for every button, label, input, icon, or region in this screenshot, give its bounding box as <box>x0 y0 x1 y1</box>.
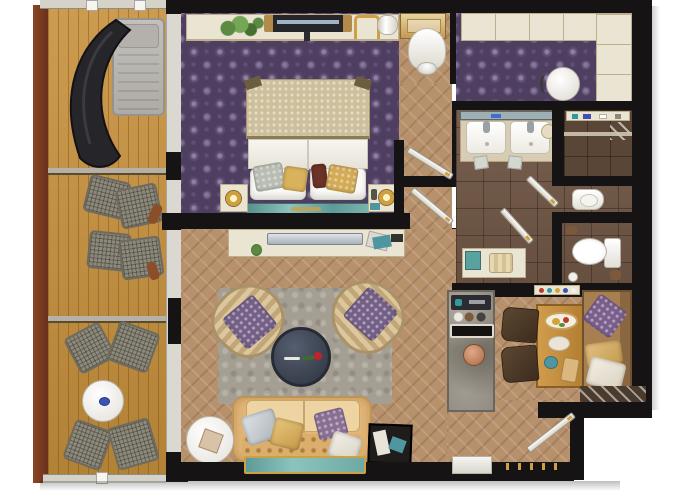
nightstand-left <box>220 184 248 212</box>
teal-book <box>370 203 380 210</box>
dining-table <box>536 304 584 388</box>
armchair-cushion-purple <box>342 286 398 342</box>
balcony-railing-top <box>40 0 166 9</box>
folded-shirt <box>373 430 391 456</box>
bathroom-bench <box>462 248 526 278</box>
dining-chair <box>501 306 540 343</box>
plant <box>216 14 264 40</box>
rose <box>314 352 322 360</box>
wall-bidet-south <box>552 212 632 223</box>
wall-hook-gold <box>530 463 533 470</box>
toiletry-basket <box>566 226 577 234</box>
wall-entry-south-east <box>538 402 652 418</box>
bidet-bowl <box>580 194 598 207</box>
kitchen-counter <box>447 290 495 412</box>
machine-detail <box>469 300 485 304</box>
table-centerpiece <box>99 397 110 406</box>
closet-run-right <box>596 13 632 105</box>
deco-cushion-silver <box>252 162 286 193</box>
toiletry <box>615 114 621 119</box>
armchair-cushion-purple <box>222 294 278 350</box>
bed-split-line <box>307 140 309 170</box>
wall-bedroom-living <box>170 213 410 229</box>
window-mullion <box>168 298 182 344</box>
deco-cushion-gold <box>281 165 308 192</box>
console-plant <box>251 244 262 256</box>
dining-chair <box>500 344 539 383</box>
magazine-teal <box>372 235 392 250</box>
plan-shadow-bottom <box>40 481 620 491</box>
vanity-mirror <box>460 111 556 120</box>
luggage-bench <box>367 423 412 465</box>
faucet <box>527 121 534 133</box>
balcony-frame <box>33 5 48 483</box>
balcony-round-table <box>82 380 124 422</box>
curved-daybed <box>52 18 148 174</box>
wall-bath-toiletroom <box>552 214 562 290</box>
teal-mug <box>544 356 558 369</box>
bed-duvet <box>246 79 370 139</box>
towel-hanging <box>473 155 489 170</box>
coffee-machine <box>451 295 491 310</box>
plan-shadow-right <box>652 6 660 410</box>
closet-run-top <box>461 13 598 41</box>
food <box>563 317 569 323</box>
black-tray <box>450 324 494 338</box>
toilet-bowl <box>572 238 607 265</box>
drain <box>529 142 533 146</box>
decor-tray <box>198 428 224 454</box>
balcony-divider <box>48 316 166 323</box>
towel-hanging <box>507 155 522 169</box>
food <box>559 323 565 327</box>
railing-post <box>134 0 146 11</box>
basin-left <box>466 121 506 154</box>
wall-top <box>170 0 652 13</box>
bedside-lamp <box>225 190 242 207</box>
wall-hook-gold <box>542 463 545 470</box>
copper-kettle <box>463 344 485 366</box>
tulip-chair-base <box>417 62 437 75</box>
console-dark-item <box>391 234 403 242</box>
shower-shelf <box>566 111 630 121</box>
tv-screen-line <box>277 20 339 24</box>
living-tv-console <box>228 229 405 257</box>
towel-roll <box>377 15 398 35</box>
toiletry <box>572 114 578 119</box>
mirror-accessory <box>491 114 501 118</box>
teal-card <box>388 436 407 453</box>
tv-stand <box>304 32 310 41</box>
minibar-shelf <box>534 285 580 295</box>
teal-bench <box>244 456 366 474</box>
railing-post <box>86 0 98 11</box>
minibar-bottle <box>539 288 544 293</box>
bedside-lamp <box>378 189 395 206</box>
side-table-round <box>186 416 234 464</box>
phone <box>371 189 377 200</box>
wall-hook-gold <box>554 463 557 470</box>
wall-vanity-shower <box>552 110 564 182</box>
faucet <box>483 121 490 133</box>
teal-towel-stack <box>465 251 481 270</box>
minibar-bottle <box>563 288 568 293</box>
plate <box>548 336 570 351</box>
wall-hook-gold <box>518 463 521 470</box>
deco-cushion-gold-damask <box>325 164 359 195</box>
window-wall <box>166 0 182 481</box>
bedroom-tv <box>264 15 352 32</box>
shower-drain-hatch <box>610 122 630 140</box>
wall-right <box>632 0 652 410</box>
toiletry <box>599 114 607 119</box>
minibar-bottle <box>547 288 552 293</box>
minibar-bottle <box>555 288 560 293</box>
counter-supplies <box>453 312 489 322</box>
bread-board <box>560 357 580 383</box>
bidet <box>572 189 604 210</box>
wall-shower-south <box>552 176 632 186</box>
minibar-bottle <box>571 288 576 293</box>
toiletry-basket <box>610 270 621 280</box>
toiletry <box>583 114 591 119</box>
beige-towel <box>489 253 513 273</box>
threshold <box>452 456 492 474</box>
round-ottoman <box>271 327 331 387</box>
wall-bottom <box>168 462 574 481</box>
living-tv <box>267 233 363 245</box>
shower-glass <box>564 132 632 136</box>
toilet-paper <box>568 272 578 282</box>
wall-hook-gold <box>506 463 509 470</box>
window-mullion <box>166 152 182 180</box>
floor-plan <box>0 0 680 491</box>
pouf-handle <box>540 74 552 94</box>
runner-gold-detail <box>291 207 321 211</box>
food-platter <box>544 312 578 330</box>
spoon <box>284 357 300 360</box>
drain <box>485 142 489 146</box>
coffee-cup <box>455 299 462 306</box>
